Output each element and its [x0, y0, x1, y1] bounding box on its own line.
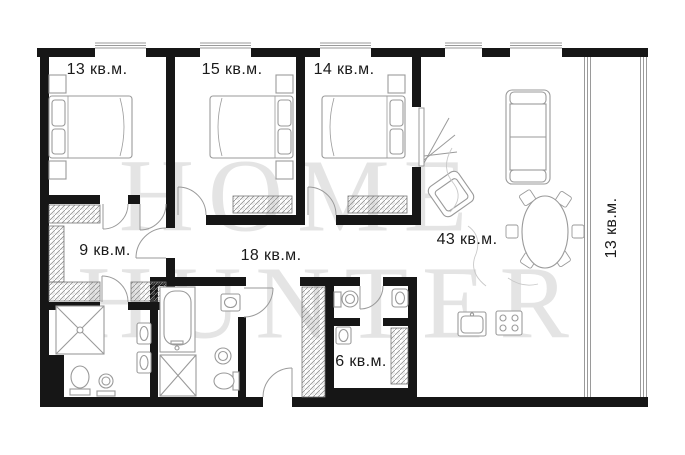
- sofa: [506, 90, 550, 184]
- label-bedroom-13: 13 кв.м.: [67, 61, 128, 79]
- bed-bedroom15: [210, 75, 293, 179]
- kitchen-sink: [458, 312, 486, 336]
- sink-middle-bath: [221, 294, 240, 311]
- door-closet9: [136, 228, 166, 258]
- door-bathroom-left: [102, 276, 128, 302]
- bed-bedroom13: [49, 75, 132, 179]
- door-bathroom-middle: [244, 288, 273, 317]
- label-hallway-18: 18 кв.м.: [241, 247, 302, 265]
- bed-bedroom14: [322, 75, 405, 158]
- sink-laundry: [336, 327, 351, 344]
- label-balcony-13: 13 кв.м.: [603, 198, 621, 259]
- balcony-glazing-right: [641, 57, 647, 397]
- door-bedroom15: [178, 187, 206, 215]
- wardrobe-bedroom14: [348, 196, 407, 213]
- door-entrance: [263, 368, 292, 397]
- wardrobe-corridor: [302, 287, 325, 397]
- label-closet-9: 9 кв.м.: [79, 242, 131, 260]
- balcony-glazing-left: [585, 57, 591, 397]
- door-bedroom13-hall: [140, 204, 166, 230]
- door-bedroom13-closet: [103, 204, 128, 229]
- wardrobe-bedroom15: [233, 196, 292, 213]
- door-bedroom14: [308, 187, 336, 215]
- shower-middle: [160, 355, 196, 396]
- sinks-left-bath: [137, 323, 151, 373]
- wardrobe-laundry: [391, 328, 408, 384]
- label-bedroom-14: 14 кв.м.: [314, 61, 375, 79]
- dining-table: [522, 196, 568, 268]
- floor-plan: HOME HUNTER: [0, 0, 685, 455]
- label-bedroom-15: 15 кв.м.: [202, 61, 263, 79]
- shower-left: [56, 306, 104, 354]
- toilet-left-bath: [70, 366, 90, 395]
- bidet-middle-bath: [215, 348, 231, 364]
- sink-wc: [392, 289, 408, 307]
- window-top-3: [320, 43, 371, 48]
- kitchen-stove: [496, 311, 522, 335]
- bathtub: [160, 287, 195, 352]
- window-top-2: [200, 43, 251, 48]
- label-living-43: 43 кв.м.: [437, 231, 498, 249]
- window-top-5: [510, 43, 562, 48]
- door-wc: [360, 286, 383, 309]
- bidet-left-bath: [97, 374, 115, 396]
- window-top-4: [445, 43, 482, 48]
- toilet-wc: [334, 291, 358, 307]
- label-laundry-6: 6 кв.м.: [335, 353, 387, 371]
- wardrobe-closet9-bottom: [49, 282, 100, 301]
- window-top-1: [95, 43, 146, 48]
- wardrobe-closet9-left: [49, 226, 64, 282]
- wardrobe-closet9-top: [49, 205, 100, 223]
- door-bedroom14-living: [419, 108, 457, 166]
- toilet-middle-bath: [214, 372, 239, 390]
